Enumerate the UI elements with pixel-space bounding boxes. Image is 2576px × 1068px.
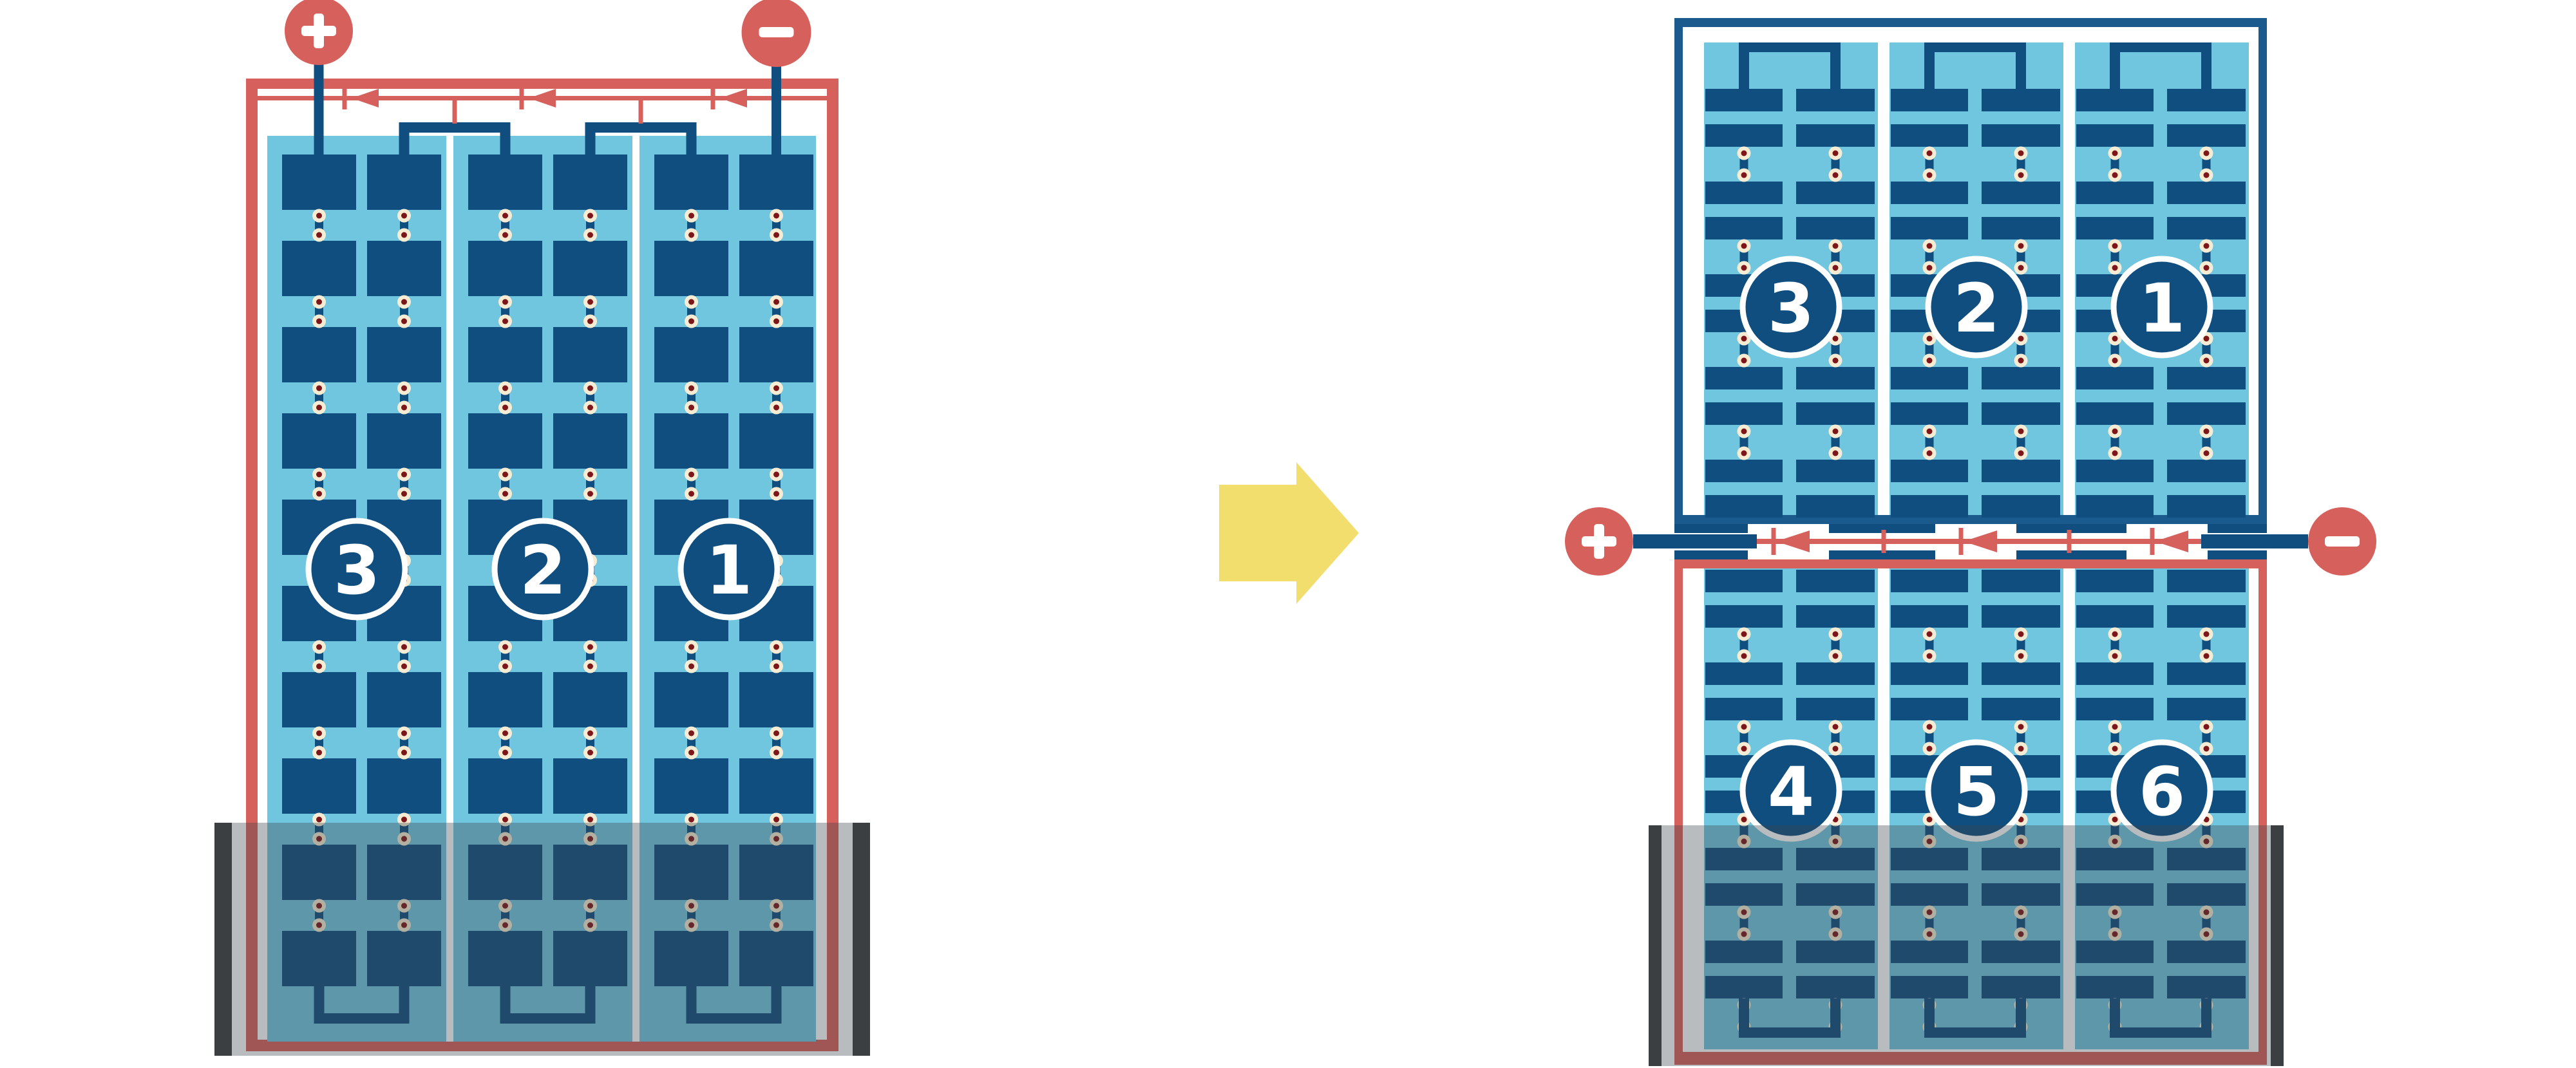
- string-separator: [2063, 42, 2075, 515]
- solar-cell: [2167, 89, 2246, 111]
- solar-cell: [1705, 495, 1783, 518]
- positive-terminal: [285, 0, 353, 65]
- solar-cell: [1705, 698, 1783, 720]
- solar-cell: [1891, 495, 1968, 518]
- shadow-edge-bar: [1649, 825, 1662, 1066]
- solar-cell: [367, 413, 441, 469]
- diode-cathode-bar: [1772, 528, 1776, 555]
- solar-cell: [2076, 495, 2154, 518]
- solar-cell: [1796, 89, 1875, 111]
- solar-cell: [739, 327, 813, 382]
- solar-cell: [2076, 217, 2154, 239]
- diode-line-tap: [2067, 530, 2072, 553]
- solar-cell: [2167, 698, 2246, 720]
- solar-cell: [1705, 570, 1783, 592]
- solar-cell: [1982, 217, 2060, 239]
- solar-cell: [1982, 89, 2060, 111]
- solar-module-shading-comparison: 321321456: [0, 0, 2576, 1068]
- solar-cell: [654, 413, 728, 469]
- solar-cell: [1796, 605, 1875, 628]
- solar-cell: [1982, 605, 2060, 628]
- solar-cell: [1796, 570, 1875, 592]
- solar-cell: [2167, 460, 2246, 482]
- string-number-label: 2: [520, 531, 566, 610]
- solar-cell: [1982, 402, 2060, 425]
- solar-cell: [1891, 217, 1968, 239]
- solar-cell: [1796, 182, 1875, 204]
- solar-cell: [1705, 89, 1783, 111]
- solar-cell: [282, 241, 356, 296]
- solar-cell: [1705, 124, 1783, 147]
- string-cap-connector: [2110, 42, 2211, 52]
- bypass-diode-line: [256, 88, 828, 124]
- solar-cell: [1982, 570, 2060, 592]
- diode-line-tap: [1882, 530, 1886, 553]
- string-number-badge: 4: [1743, 742, 1839, 839]
- solar-cell: [739, 241, 813, 296]
- solar-cell: [1891, 460, 1968, 482]
- solar-cell: [1891, 89, 1968, 111]
- string-number-label: 1: [706, 531, 752, 610]
- solar-cell: [468, 241, 542, 296]
- solar-cell: [282, 672, 356, 727]
- solar-cell: [739, 758, 813, 814]
- solar-cell: [2076, 698, 2154, 720]
- solar-cell: [282, 327, 356, 382]
- diode-line-tap: [453, 98, 457, 124]
- solar-cell: [2076, 570, 2154, 592]
- solar-cell: [2076, 89, 2154, 111]
- shadow-edge-bar: [214, 823, 232, 1056]
- string-number-badge: 6: [2114, 742, 2210, 839]
- solar-cell: [1796, 367, 1875, 389]
- solar-cell: [654, 241, 728, 296]
- solar-cell: [1982, 698, 2060, 720]
- shade-overlay: [214, 823, 870, 1056]
- solar-cell: [739, 155, 813, 210]
- solar-cell: [468, 155, 542, 210]
- solar-cell: [2167, 217, 2246, 239]
- solar-cell: [2167, 495, 2246, 518]
- solar-cell: [1705, 182, 1783, 204]
- string-cap-connector: [1739, 42, 1841, 52]
- solar-cell: [1705, 460, 1783, 482]
- solar-cell: [2076, 662, 2154, 685]
- solar-cell: [1891, 605, 1968, 628]
- solar-cell: [654, 155, 728, 210]
- solar-cell: [553, 327, 627, 382]
- diode-cathode-bar: [711, 88, 715, 109]
- solar-cell: [1982, 460, 2060, 482]
- top-half-panel: 321: [1674, 18, 2267, 524]
- solar-cell: [468, 672, 542, 727]
- solar-cell: [553, 672, 627, 727]
- solar-cell: [1982, 124, 2060, 147]
- solar-cell: [739, 672, 813, 727]
- solar-cell: [367, 155, 441, 210]
- string-number-badge: 3: [308, 521, 405, 617]
- solar-cell: [282, 413, 356, 469]
- string-number-badge: 5: [1928, 742, 2025, 839]
- solar-cell: [1705, 402, 1783, 425]
- solar-cell: [1891, 182, 1968, 204]
- solar-cell: [1796, 495, 1875, 518]
- solar-cell: [1705, 662, 1783, 685]
- diode-arrow: [720, 89, 747, 108]
- terminal-bus: [1633, 534, 1757, 548]
- negative-terminal: [2308, 507, 2376, 576]
- string-number-label: 3: [334, 531, 380, 610]
- full-cell-module: 321: [214, 0, 870, 1056]
- shade-overlay: [1649, 825, 2284, 1066]
- solar-cell: [2076, 367, 2154, 389]
- shadow-region: [214, 823, 870, 1056]
- solar-cell: [1891, 698, 1968, 720]
- string-number-badge: 1: [2114, 259, 2210, 355]
- solar-cell: [2076, 402, 2154, 425]
- solar-cell: [2167, 367, 2246, 389]
- solar-cell: [654, 327, 728, 382]
- diode-cathode-bar: [343, 88, 347, 109]
- right-arrow-icon: [1219, 462, 1359, 604]
- solar-cell: [654, 672, 728, 727]
- solar-cell: [1891, 124, 1968, 147]
- solar-cell: [1796, 698, 1875, 720]
- shadow-region: [1649, 825, 2284, 1066]
- string-number-label: 4: [1768, 753, 1814, 831]
- solar-cell: [1796, 460, 1875, 482]
- solar-cell: [2167, 182, 2246, 204]
- solar-cell: [1796, 124, 1875, 147]
- string-number-label: 3: [1768, 269, 1814, 348]
- solar-cell: [553, 413, 627, 469]
- string-number-badge: 1: [681, 521, 777, 617]
- string-cap-connector: [1924, 42, 2026, 52]
- solar-cell: [2167, 402, 2246, 425]
- solar-cell: [553, 155, 627, 210]
- transition-arrow: [1219, 462, 1359, 604]
- solar-cell: [1796, 402, 1875, 425]
- string-number-badge: 2: [495, 521, 591, 617]
- solar-cell: [1705, 605, 1783, 628]
- solar-cell: [1891, 570, 1968, 592]
- solar-cell: [2167, 605, 2246, 628]
- solar-cell: [468, 758, 542, 814]
- minus-icon: [759, 27, 794, 37]
- string-number-badge: 2: [1928, 259, 2025, 355]
- solar-cell: [739, 413, 813, 469]
- negative-terminal: [742, 0, 811, 67]
- solar-cell: [1982, 662, 2060, 685]
- shadow-edge-bar: [2271, 825, 2284, 1066]
- solar-cell: [1891, 367, 1968, 389]
- half-cut-module: 321456: [1565, 18, 2376, 1066]
- solar-cell: [2076, 605, 2154, 628]
- solar-cell: [1796, 217, 1875, 239]
- positive-terminal: [1565, 507, 1633, 576]
- terminal-bus: [2201, 534, 2308, 548]
- solar-cell: [654, 758, 728, 814]
- solar-cell: [282, 758, 356, 814]
- diagram-canvas: 321321456: [0, 0, 2576, 1068]
- diode-cathode-bar: [1959, 528, 1964, 555]
- solar-cell: [1891, 402, 1968, 425]
- diode-cathode-bar: [520, 88, 524, 109]
- diode-arrow: [529, 89, 556, 108]
- string-number-badge: 3: [1743, 259, 1839, 355]
- solar-cell: [367, 672, 441, 727]
- string-cap-connector: [399, 122, 511, 133]
- solar-cell: [2076, 182, 2154, 204]
- string-number-label: 2: [1953, 269, 2000, 348]
- solar-cell: [1982, 495, 2060, 518]
- shadow-edge-bar: [853, 823, 870, 1056]
- solar-cell: [2076, 124, 2154, 147]
- string-separator: [1878, 42, 1889, 515]
- solar-cell: [2167, 570, 2246, 592]
- terminal-stem: [314, 62, 324, 156]
- solar-cell: [1982, 367, 2060, 389]
- diode-cathode-bar: [2150, 528, 2155, 555]
- solar-cell: [282, 155, 356, 210]
- solar-cell: [468, 413, 542, 469]
- minus-icon: [2325, 536, 2360, 547]
- solar-cell: [2076, 460, 2154, 482]
- string-number-label: 5: [1953, 753, 2000, 831]
- solar-cell: [1982, 182, 2060, 204]
- solar-cell: [2167, 662, 2246, 685]
- solar-cell: [367, 241, 441, 296]
- solar-cell: [2167, 124, 2246, 147]
- solar-cell: [1705, 217, 1783, 239]
- terminal-stem: [772, 62, 781, 156]
- solar-cell: [1891, 662, 1968, 685]
- string-cap-connector: [585, 122, 697, 133]
- solar-cell: [367, 758, 441, 814]
- solar-cell: [367, 327, 441, 382]
- solar-cell: [1796, 662, 1875, 685]
- solar-cell: [553, 241, 627, 296]
- string-number-label: 6: [2139, 753, 2185, 831]
- diode-line-tap: [639, 98, 643, 124]
- string-number-label: 1: [2139, 269, 2185, 348]
- solar-cell: [1705, 367, 1783, 389]
- diode-arrow: [352, 89, 379, 108]
- solar-cell: [553, 758, 627, 814]
- solar-cell: [468, 327, 542, 382]
